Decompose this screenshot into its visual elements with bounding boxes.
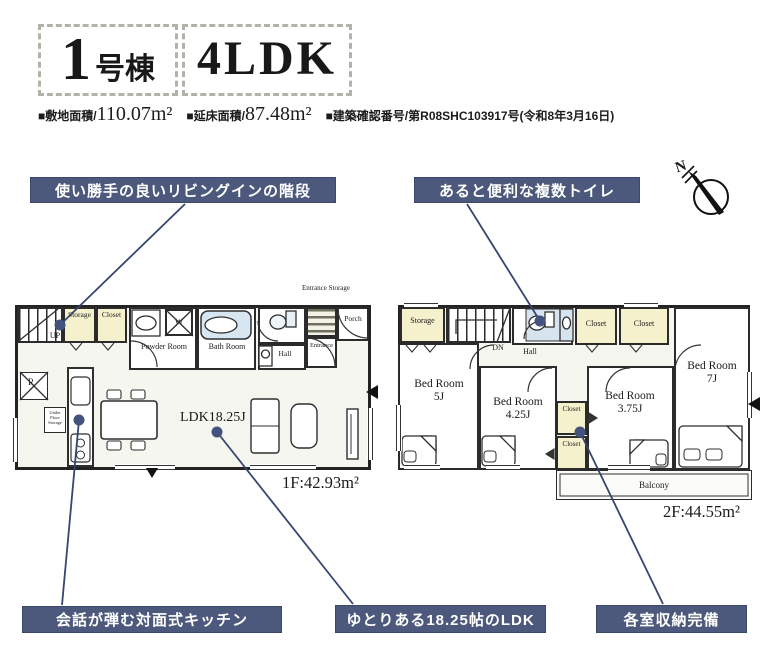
callout-living-stairs: 使い勝手の良いリビングインの階段 bbox=[30, 177, 336, 203]
bedroom-7j-label: Bed Room 7J bbox=[684, 360, 740, 386]
entrance-label: Entrance bbox=[307, 342, 336, 349]
callout-storage: 各室収納完備 bbox=[596, 605, 747, 633]
up-label: UP bbox=[44, 332, 66, 341]
building-number-box: 1 号棟 bbox=[38, 24, 178, 96]
floor2-closet-a-label: Closet bbox=[577, 320, 615, 329]
floor1-area-label: 1F:42.93m² bbox=[282, 474, 372, 492]
floor1-porch bbox=[337, 307, 369, 341]
floor2-closet-small-a-label: Closet bbox=[560, 406, 583, 414]
floor1-entrance-storage bbox=[306, 307, 337, 337]
floor2-storage-label: Storage bbox=[402, 317, 443, 326]
balcony-label: Balcony bbox=[620, 480, 688, 490]
bedroom-425j-label: Bed Room 4.25J bbox=[488, 396, 548, 422]
floor2-hall-label: Hall bbox=[515, 348, 545, 357]
floor2-toilet-room bbox=[512, 307, 573, 345]
floor1-toilet-room bbox=[258, 307, 306, 344]
callout-multiple-toilets: あると便利な複数トイレ bbox=[414, 177, 640, 203]
building-suffix: 号棟 bbox=[95, 44, 155, 88]
connector-toilet bbox=[467, 204, 540, 321]
floor2-closet-b-label: Closet bbox=[621, 320, 667, 329]
washer-label: W bbox=[172, 317, 186, 327]
powder-room-label: Powder Room bbox=[136, 343, 192, 352]
plan-type-box: 4LDK bbox=[182, 24, 352, 96]
callout-kitchen: 会話が弾む対面式キッチン bbox=[22, 606, 282, 633]
floor2-stairs bbox=[446, 307, 511, 343]
plan-type: 4LDK bbox=[197, 27, 337, 91]
compass-needle bbox=[688, 171, 724, 215]
porch-label: Porch bbox=[339, 315, 367, 323]
bedroom-375j-label: Bed Room 3.75J bbox=[600, 390, 660, 416]
floor1-hall-label: Hall bbox=[272, 350, 298, 358]
floor1-closet-label: Closet bbox=[98, 311, 125, 319]
floor2-closet-small-b-label: Closet bbox=[560, 441, 583, 449]
spec-floor-area: ■延床面積/87.48m² bbox=[186, 103, 311, 126]
floor1-bath-room bbox=[197, 307, 256, 370]
spec-line: ■敷地面積/110.07m² ■延床面積/87.48m² ■建築確認番号/第R0… bbox=[38, 103, 762, 126]
floor2-bedroom-5j bbox=[398, 343, 479, 470]
building-number: 1 bbox=[61, 27, 91, 91]
floor1-storage-label: Storage bbox=[64, 311, 95, 319]
spec-site-area: ■敷地面積/110.07m² bbox=[38, 103, 172, 126]
floor2-area-label: 2F:44.55m² bbox=[663, 503, 755, 521]
spec-confirmation-number: ■建築確認番号/第R08SHC103917号(令和8年3月16日) bbox=[326, 107, 615, 125]
bath-room-label: Bath Room bbox=[206, 343, 248, 352]
floor2-bedroom-7j bbox=[674, 307, 750, 470]
entrance-storage-label: Entrance Storage bbox=[290, 285, 362, 293]
refrigerator-label: R bbox=[24, 377, 38, 387]
underfloor-storage-label: Under Floor Storage bbox=[45, 410, 65, 425]
floor2-bedroom-375j bbox=[587, 366, 674, 470]
ldk-label: LDK18.25J bbox=[180, 410, 266, 426]
floorplan-sheet: 1 号棟 4LDK ■敷地面積/110.07m² ■延床面積/87.48m² ■… bbox=[0, 0, 772, 663]
callout-ldk: ゆとりある18.25帖のLDK bbox=[335, 605, 546, 633]
compass-north-label: N bbox=[670, 157, 692, 179]
bedroom-5j-label: Bed Room 5J bbox=[408, 378, 470, 404]
dn-label: DN bbox=[486, 344, 510, 353]
